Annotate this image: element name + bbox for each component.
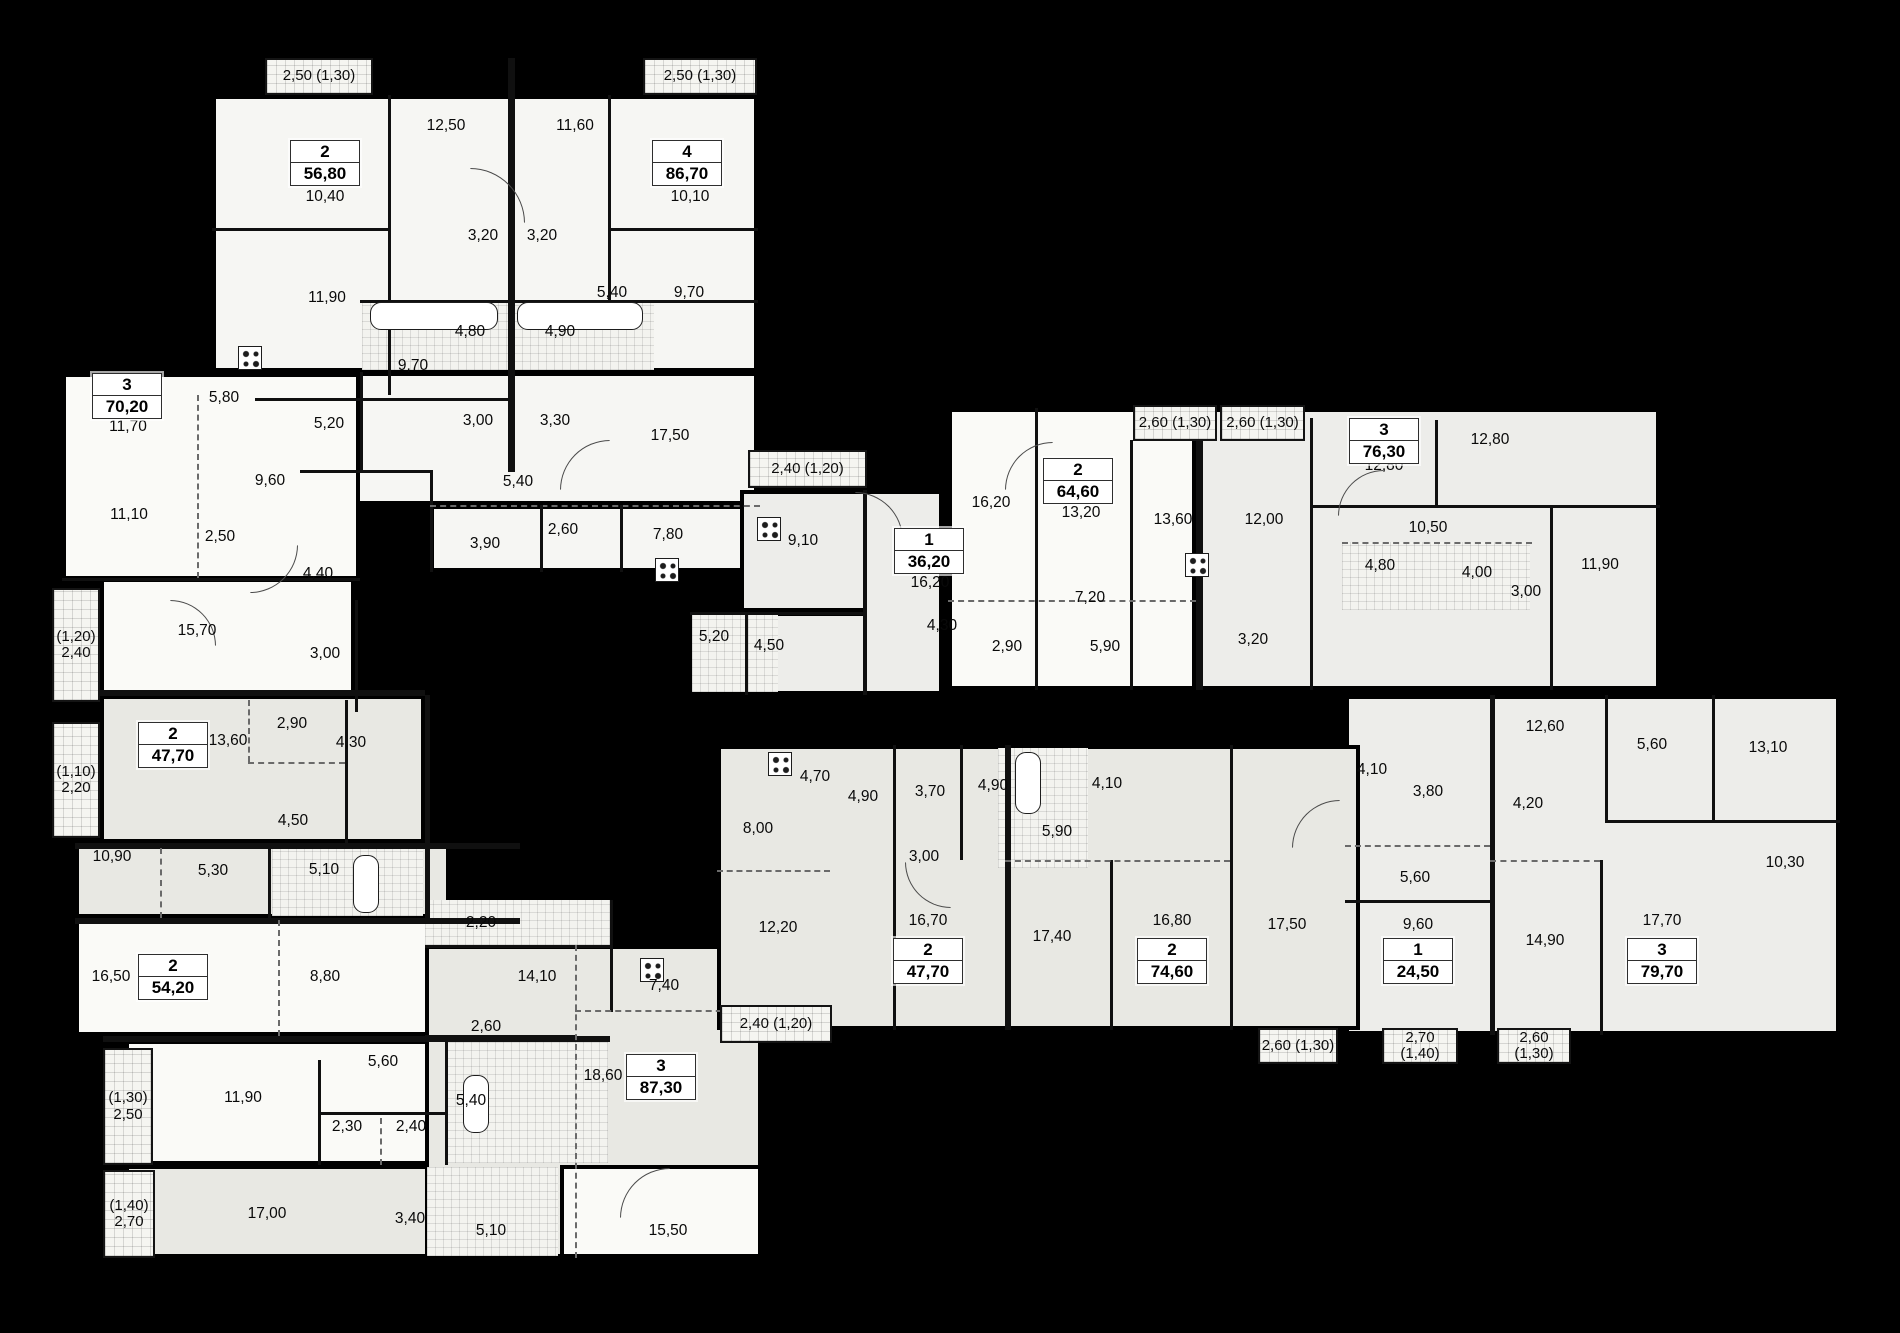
room-area-label: 3,20 [468,227,498,245]
room-area-label: 2,60 [471,1018,501,1036]
balcony: 2,60 (1,30) [1133,405,1217,441]
wall-segment [1435,420,1438,505]
floor-plan: 2,50 (1,30)2,50 (1,30)(1,20) 2,40(1,10) … [0,0,1900,1333]
stove-icon [768,752,792,776]
room-area-label: 3,20 [527,227,557,245]
balcony: 2,50 (1,30) [265,58,373,95]
room-area-label: 5,90 [1042,823,1072,841]
room-area-label: 11,10 [110,506,148,524]
room-area-label: 10,30 [1766,854,1805,872]
room-area-label: 11,90 [224,1089,262,1107]
room-area-label: 4,90 [978,777,1008,795]
apartment-total-area: 87,30 [627,1077,695,1099]
room-area-label: 10,40 [306,188,345,206]
apartment-total-area: 54,20 [139,977,207,999]
apartment-rooms-count: 4 [653,141,721,163]
wall-segment [1345,845,1490,847]
room-area-label: 16,80 [1153,912,1192,930]
room-area-label: 17,70 [1643,912,1682,930]
balcony-area-label: 2,60 (1,30) [1499,1030,1569,1063]
room-area-label: 3,00 [310,645,340,663]
wall-segment [1490,695,1495,1035]
apartment-badge[interactable]: 256,80 [290,140,360,186]
wall-segment [960,745,963,860]
room-area-label: 3,30 [540,412,570,430]
room-area-label: 13,20 [1062,504,1101,522]
balcony: (1,30) 2,50 [103,1048,153,1165]
wall-segment [893,745,896,1030]
room-area-label: 4,50 [754,637,784,655]
room-area-label: 14,10 [518,968,557,986]
apartment-total-area: 64,60 [1044,481,1112,503]
apartment-badge[interactable]: 379,70 [1627,938,1697,984]
apartment-badge[interactable]: 387,30 [626,1054,696,1100]
apartment-rooms-count: 1 [895,529,963,551]
wall-segment [75,918,520,924]
room-area-label: 4,30 [336,734,366,752]
wall-segment [508,58,515,472]
wall-segment [1605,820,1840,823]
room-area-label: 10,50 [1409,519,1448,537]
apartment-badge[interactable]: 124,50 [1383,938,1453,984]
room-area-label: 11,90 [1581,556,1619,574]
room-area-label: 4,90 [545,323,575,341]
apartment-total-area: 24,50 [1384,961,1452,983]
room-area-label: 16,50 [92,968,131,986]
room-area-label: 4,80 [1365,557,1395,575]
room-area-label: 11,70 [109,418,147,436]
apartment-total-area: 47,70 [894,961,962,983]
apartment-badge[interactable]: 486,70 [652,140,722,186]
room-area-label: 5,90 [1090,638,1120,656]
wall-segment [690,612,863,615]
apartment-total-area: 70,20 [93,396,161,418]
wall-segment [388,95,391,395]
balcony: 2,60 (1,30) [1258,1028,1338,1064]
room-area-label: 5,30 [198,862,228,880]
apartment-badge[interactable]: 247,70 [138,722,208,768]
wall-segment [1110,860,1113,1030]
room-area-label: 10,90 [93,848,132,866]
room-area-label: 9,70 [674,284,704,302]
apartment-rooms-count: 1 [1384,939,1452,961]
balcony-area-label: 2,50 (1,30) [664,68,737,85]
bathtub-icon [1015,752,1041,814]
room-area-label: 3,20 [1238,631,1268,649]
room-area-label: 10,10 [671,188,710,206]
stove-icon [757,517,781,541]
wall-segment [1605,695,1608,820]
room-area-label: 17,50 [651,427,690,445]
wall-segment [1130,440,1133,690]
wall-segment [248,700,250,762]
room-block [75,918,447,1036]
wall-segment [430,470,433,572]
room-area-label: 15,70 [178,622,217,640]
wall-segment [75,843,520,849]
room-area-label: 2,30 [332,1118,362,1136]
wall-segment [948,600,1196,602]
balcony: (1,10) 2,20 [52,722,100,838]
wall-segment [1345,900,1490,903]
room-area-label: 5,40 [503,473,533,491]
wall-segment [268,848,271,918]
apartment-badge[interactable]: 264,60 [1043,458,1113,504]
room-area-label: 13,60 [1154,511,1193,529]
room-area-label: 5,40 [597,284,627,302]
wall-segment [1712,695,1715,820]
room-area-label: 5,10 [309,861,339,879]
room-area-label: 8,80 [310,968,340,986]
apartment-total-area: 76,30 [1350,441,1418,463]
room-area-label: 17,40 [1033,928,1072,946]
apartment-total-area: 36,20 [895,551,963,573]
room-area-label: 12,20 [759,919,798,937]
room-area-label: 2,60 [548,521,578,539]
room-area-label: 11,60 [556,117,594,135]
apartment-rooms-count: 2 [291,141,359,163]
wall-segment [430,505,760,507]
room-area-label: 9,60 [255,472,285,490]
apartment-badge[interactable]: 274,60 [1137,938,1207,984]
room-area-label: 4,80 [455,323,485,341]
apartment-total-area: 79,70 [1628,961,1696,983]
wall-segment [1550,505,1553,690]
bathtub-icon [517,302,643,330]
wall-segment [425,695,430,918]
room-area-label: 9,60 [1403,916,1433,934]
wall-segment [610,900,613,1012]
room-area-label: 7,80 [653,526,683,544]
apartment-badge[interactable]: 370,20 [92,373,162,419]
wall-segment [212,228,388,231]
balcony-area-label: 2,70 (1,40) [1384,1030,1456,1063]
apartment-total-area: 56,80 [291,163,359,185]
bathtub-icon [353,855,379,913]
wall-segment [1490,860,1600,862]
wall-segment [278,920,280,1036]
wall-segment [425,945,610,948]
room-area-label: 17,50 [1268,916,1307,934]
balcony: 2,40 (1,20) [720,1005,832,1043]
room-area-label: 5,60 [1400,869,1430,887]
wall-segment [445,1040,448,1165]
balcony-area-label: (1,20) 2,40 [56,629,95,662]
wall-segment [608,95,611,300]
stove-icon [655,558,679,582]
balcony-area-label: (1,30) 2,50 [108,1090,147,1123]
room-area-label: 5,60 [1637,736,1667,754]
wall-segment [1005,860,1230,862]
balcony-area-label: (1,40) 2,70 [109,1198,148,1231]
wall-segment [197,395,199,578]
room-area-label: 4,10 [1092,775,1122,793]
wall-segment [52,690,425,696]
balcony: 2,60 (1,30) [1497,1028,1571,1064]
wall-segment [300,470,430,473]
balcony-area-label: 2,60 (1,30) [1139,415,1212,432]
apartment-rooms-count: 2 [1044,459,1112,481]
room-area-label: 9,10 [788,532,818,550]
room-area-label: 3,00 [1511,583,1541,601]
balcony: 2,70 (1,40) [1382,1028,1458,1064]
room-area-label: 17,00 [248,1205,287,1223]
balcony-area-label: 2,60 (1,30) [1226,415,1299,432]
wall-segment [1230,745,1233,1030]
room-area-label: 4,10 [1357,761,1387,779]
balcony: (1,40) 2,70 [103,1170,155,1258]
room-area-label: 16,70 [909,912,948,930]
room-area-label: 14,90 [1526,932,1565,950]
room-area-label: 3,00 [463,412,493,430]
wall-segment [360,372,363,470]
room-area-label: 7,20 [1075,589,1105,607]
room-area-label: 5,40 [456,1092,486,1110]
wall-segment [575,945,577,1258]
wall-segment [248,762,345,764]
room-area-label: 4,20 [1513,795,1543,813]
apartment-badge[interactable]: 254,20 [138,954,208,1000]
wall-segment [540,505,543,572]
room-area-label: 7,40 [649,977,679,995]
wall-segment [380,1118,382,1165]
wet-zone [998,748,1088,868]
apartment-rooms-count: 2 [1138,939,1206,961]
room-area-label: 3,40 [395,1210,425,1228]
wall-segment [318,1112,445,1115]
wet-zone [1342,542,1530,610]
room-area-label: 12,60 [1526,718,1565,736]
apartment-rooms-count: 3 [1628,939,1696,961]
balcony: 2,60 (1,30) [1220,405,1305,441]
room-area-label: 2,90 [277,715,307,733]
balcony-area-label: 2,60 (1,30) [1262,1038,1335,1055]
wall-segment [160,848,162,918]
room-area-label: 12,00 [1245,511,1284,529]
room-area-label: 15,50 [649,1222,688,1240]
room-area-label: 5,20 [699,628,729,646]
stove-icon [1185,553,1209,577]
room-area-label: 5,60 [368,1053,398,1071]
room-area-label: 2,20 [466,914,496,932]
wet-zone [272,846,423,916]
apartment-rooms-count: 2 [139,955,207,977]
room-area-label: 16,20 [911,574,950,592]
room-area-label: 3,00 [909,848,939,866]
room-area-label: 3,90 [470,535,500,553]
wall-segment [745,612,748,695]
wall-segment [717,870,830,872]
room-area-label: 5,10 [476,1222,506,1240]
room-area-label: 16,20 [972,494,1011,512]
apartment-rooms-count: 2 [894,939,962,961]
apartment-rooms-count: 2 [139,723,207,745]
wall-segment [610,228,758,231]
room-area-label: 18,60 [584,1067,623,1085]
balcony-area-label: 2,50 (1,30) [283,68,356,85]
room-area-label: 4,50 [278,812,308,830]
room-area-label: 13,60 [209,732,248,750]
room-area-label: 8,00 [743,820,773,838]
balcony: 2,50 (1,30) [643,58,757,95]
room-block [948,408,1196,690]
balcony: (1,20) 2,40 [52,588,100,702]
apartment-total-area: 86,70 [653,163,721,185]
room-area-label: 2,90 [992,638,1022,656]
balcony-area-label: 2,40 (1,20) [740,1016,813,1033]
wall-segment [1342,542,1532,544]
stove-icon [238,346,262,370]
room-area-label: 4,70 [800,768,830,786]
wall-segment [620,505,623,572]
apartment-badge[interactable]: 376,30 [1349,418,1419,464]
apartment-badge[interactable]: 136,20 [894,528,964,574]
wall-segment [345,700,348,843]
apartment-total-area: 47,70 [139,745,207,767]
room-area-label: 2,50 [205,528,235,546]
room-area-label: 5,20 [314,415,344,433]
room-area-label: 3,70 [915,783,945,801]
balcony-area-label: (1,10) 2,20 [56,764,95,797]
room-block [100,695,425,843]
wall-segment [355,600,358,712]
apartment-rooms-count: 3 [1350,419,1418,441]
balcony: 2,40 (1,20) [748,450,867,488]
room-area-label: 5,80 [209,389,239,407]
wall-segment [1600,860,1603,1035]
room-area-label: 12,80 [1471,431,1510,449]
apartment-total-area: 74,60 [1138,961,1206,983]
room-area-label: 4,40 [303,565,333,583]
balcony-area-label: 2,40 (1,20) [771,461,844,478]
room-area-label: 12,50 [427,117,466,135]
room-area-label: 3,80 [1413,783,1443,801]
room-area-label: 4,30 [927,617,957,635]
apartment-badge[interactable]: 247,70 [893,938,963,984]
apartment-rooms-count: 3 [93,374,161,396]
wet-zone [427,1167,558,1256]
room-area-label: 13,10 [1749,739,1788,757]
room-area-label: 4,00 [1462,564,1492,582]
room-area-label: 4,90 [848,788,878,806]
wall-segment [255,398,508,401]
apartment-rooms-count: 3 [627,1055,695,1077]
wall-segment [1310,418,1313,690]
room-area-label: 2,40 [396,1118,426,1136]
room-area-label: 9,70 [398,357,428,375]
room-area-label: 11,90 [308,289,346,307]
wall-segment [1196,405,1203,690]
